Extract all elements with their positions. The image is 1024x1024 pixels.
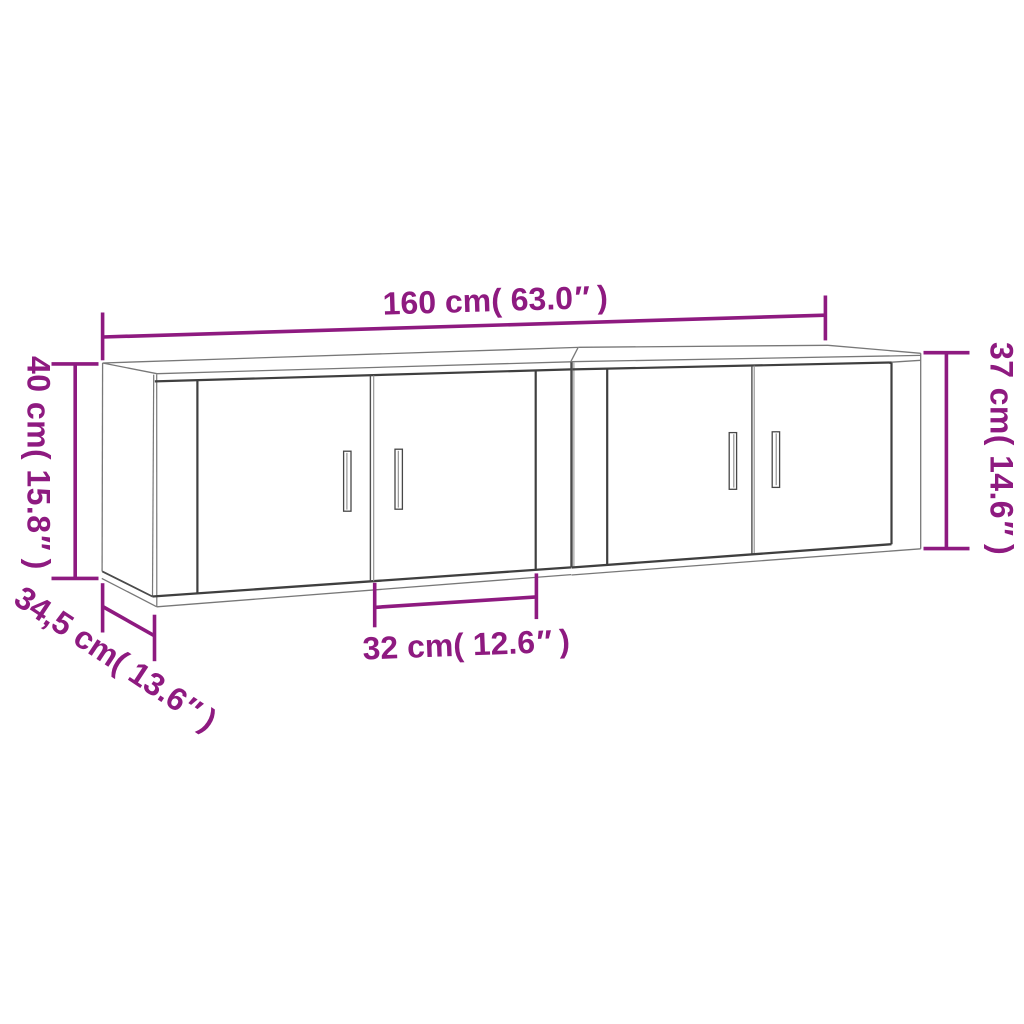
svg-text:37 cm( 14.6″ ): 37 cm( 14.6″ )	[984, 342, 1020, 555]
svg-text:40 cm( 15.8″ ): 40 cm( 15.8″ )	[21, 356, 57, 570]
svg-text:160 cm( 63.0″ ): 160 cm( 63.0″ )	[382, 279, 608, 322]
